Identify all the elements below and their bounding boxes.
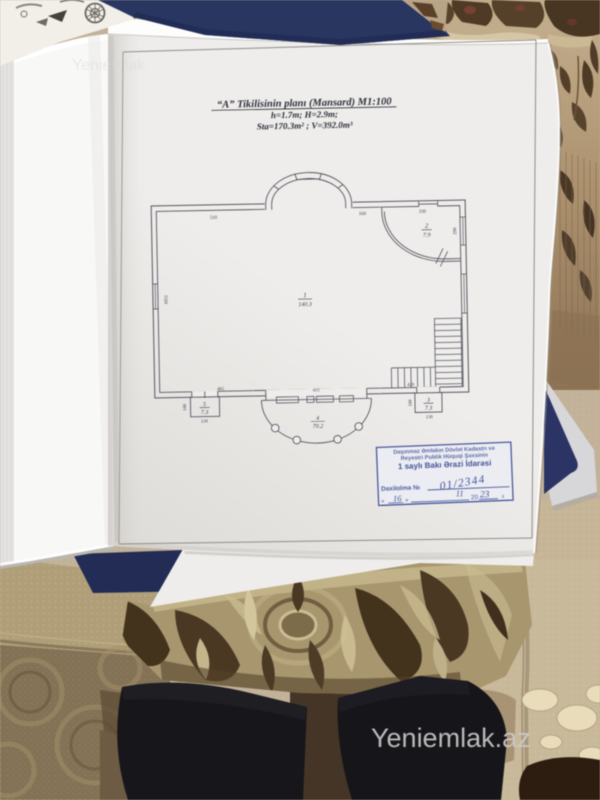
svg-text:465: 465 xyxy=(217,386,225,391)
svg-text:330: 330 xyxy=(419,210,427,215)
svg-text:Sta=170.3m² ; V=392.0m³: Sta=170.3m² ; V=392.0m³ xyxy=(257,120,353,132)
svg-text:420: 420 xyxy=(407,382,415,387)
svg-text:100: 100 xyxy=(182,403,187,411)
svg-text:16: 16 xyxy=(393,493,403,503)
svg-text:7.3: 7.3 xyxy=(201,410,209,416)
svg-text:il: il xyxy=(502,494,504,499)
svg-text:11: 11 xyxy=(456,488,464,498)
svg-text:h=1.7m; H=2.9m;: h=1.7m; H=2.9m; xyxy=(271,109,338,120)
svg-text:160: 160 xyxy=(359,212,367,217)
svg-text:3: 3 xyxy=(426,398,430,404)
svg-text:140.3: 140.3 xyxy=(298,301,312,308)
svg-text:1: 1 xyxy=(303,292,306,299)
svg-text:4: 4 xyxy=(316,415,319,422)
svg-text:Yeniemlak: Yeniemlak xyxy=(72,57,146,74)
svg-text:20: 20 xyxy=(471,494,479,501)
svg-text:Yeniemlak.az: Yeniemlak.az xyxy=(371,723,531,753)
svg-text:415: 415 xyxy=(313,387,321,392)
svg-text:290: 290 xyxy=(453,227,458,235)
svg-text:1051: 1051 xyxy=(164,294,169,304)
svg-text:130: 130 xyxy=(426,414,434,419)
svg-text:130: 130 xyxy=(201,418,209,423)
svg-text:70.2: 70.2 xyxy=(313,424,324,430)
svg-text:510: 510 xyxy=(210,216,218,221)
svg-text:7.9: 7.9 xyxy=(423,233,431,239)
svg-text:7.3: 7.3 xyxy=(425,406,433,412)
svg-text:100: 100 xyxy=(407,399,412,407)
svg-text:5: 5 xyxy=(203,402,206,408)
